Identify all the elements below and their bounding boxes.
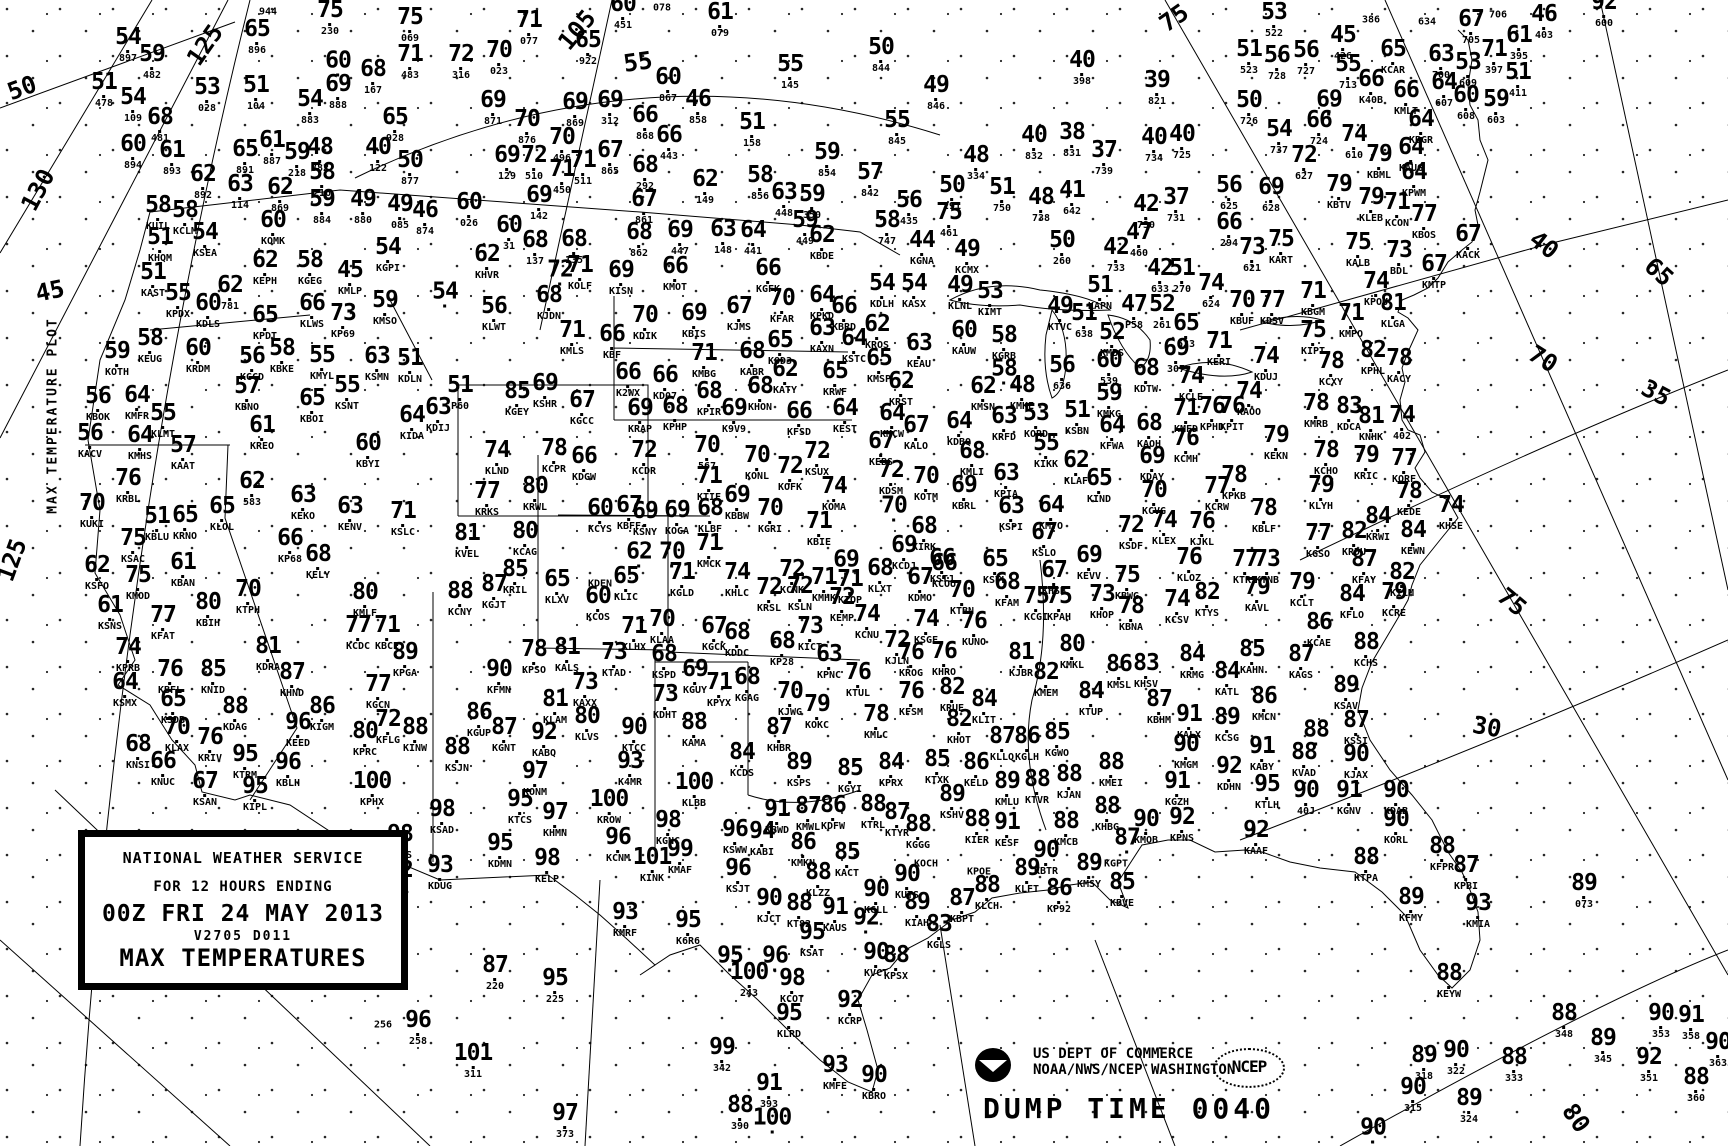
- station-max-temp: 87: [1343, 709, 1369, 732]
- station-max-temp: 69: [526, 184, 552, 207]
- station-id: KFMY: [1398, 914, 1424, 924]
- station-plot: 76KFSM: [898, 680, 924, 718]
- station-id: KBPT: [949, 915, 975, 925]
- station-max-temp: 68: [739, 340, 765, 363]
- station-max-temp: 89: [994, 770, 1020, 793]
- station-max-temp: 88: [905, 813, 931, 836]
- station-max-temp: 53: [1023, 402, 1049, 425]
- station-plot: 68137: [522, 229, 548, 267]
- station-id: KCSV: [1164, 616, 1190, 626]
- station-id: KPIT: [1219, 423, 1245, 433]
- station-id: 363: [1705, 1059, 1728, 1069]
- station-max-temp: 60: [120, 133, 146, 156]
- station-max-temp: 60: [587, 497, 613, 520]
- station-max-temp: 56: [481, 295, 507, 318]
- station-id: KTAD: [601, 669, 627, 679]
- station-max-temp: 92: [1636, 1046, 1662, 1069]
- station-max-temp: 63: [809, 317, 835, 340]
- station-max-temp: 68: [747, 375, 773, 398]
- station-max-temp: 64: [399, 404, 425, 427]
- station-max-temp: 79: [1326, 173, 1352, 196]
- station-max-temp: 81: [1008, 641, 1034, 664]
- station-max-temp: 95: [776, 1002, 802, 1025]
- station-max-temp: 49: [350, 188, 376, 211]
- station-id: KEWN: [1400, 547, 1426, 557]
- station-plot: 66KDGW: [571, 445, 597, 483]
- station-plot: 59KMSO: [372, 289, 398, 327]
- station-max-temp: 75: [397, 6, 423, 29]
- station-id: KIGM: [309, 723, 335, 733]
- station-id: KRDM: [185, 365, 211, 375]
- station-id: KPHX: [353, 798, 392, 808]
- station-plot: 57842: [857, 161, 883, 199]
- station-max-temp: 98: [534, 847, 560, 870]
- station-id: KFAR: [769, 315, 795, 325]
- station-id: 079: [707, 29, 733, 39]
- station-max-temp: 66: [652, 364, 678, 387]
- station-max-temp: 75: [1114, 564, 1140, 587]
- station-max-temp: 60: [1453, 84, 1479, 107]
- station-id: KGWO: [1044, 749, 1070, 759]
- station-id: KEKO: [290, 512, 316, 522]
- station-id: KDGW: [571, 473, 597, 483]
- station-id: 342: [709, 1064, 735, 1074]
- station-plot: 83KHSV: [1133, 652, 1159, 690]
- station-max-temp: 89: [1571, 872, 1597, 895]
- station-plot: 90KFMN: [486, 658, 512, 696]
- station-plot: 62KSFO: [84, 554, 110, 592]
- station-max-temp: 66: [632, 104, 658, 127]
- station-id: KSHV: [939, 811, 965, 821]
- station-plot: 71483: [397, 43, 423, 81]
- station-id: 868: [632, 132, 658, 142]
- station-plot: 47P58: [1121, 293, 1147, 331]
- station-id: 883: [297, 116, 323, 126]
- station-plot: 95KLRD: [776, 1002, 802, 1040]
- station-plot: 67KGCK: [701, 615, 727, 653]
- station-plot: 63KEKO: [290, 484, 316, 522]
- station-id: KHLC: [724, 589, 750, 599]
- station-id: 316: [448, 71, 474, 81]
- station-plot: 90KJAX: [1343, 743, 1369, 781]
- station-plot: 63KENV: [337, 495, 363, 533]
- station-max-temp: 55: [165, 282, 191, 305]
- station-max-temp: 86: [1106, 653, 1132, 676]
- station-id: 865: [597, 167, 623, 177]
- station-max-temp: 55: [777, 53, 803, 76]
- station-max-temp: 64: [841, 327, 867, 350]
- station-max-temp: 68: [1133, 357, 1159, 380]
- station-max-temp: 99: [709, 1036, 735, 1059]
- station-max-temp: 69: [721, 397, 747, 420]
- station-plot: 58KEUG: [137, 327, 163, 365]
- side-axis-label: MAX TEMPERATURE PLOT: [46, 301, 61, 531]
- station-plot: 63KSMN: [364, 345, 390, 383]
- station-id: 402: [1389, 432, 1415, 442]
- station-plot: 634: [1418, 17, 1436, 28]
- station-max-temp: 85: [834, 841, 860, 864]
- station-plot: 100KPHX: [353, 770, 392, 808]
- station-plot: 89KFMY: [1398, 886, 1424, 924]
- station-plot: 76KTUL: [845, 661, 871, 699]
- station-plot: 69KISN: [608, 259, 634, 297]
- station-plot: 55845: [884, 109, 910, 147]
- station-id: 397: [1481, 66, 1507, 76]
- station-max-temp: 71: [516, 9, 542, 32]
- station-plot: 88KVAD: [1291, 741, 1317, 779]
- station-id: KBIS: [681, 330, 707, 340]
- station-max-temp: 91: [822, 896, 848, 919]
- station-plot: 40832: [1021, 124, 1047, 162]
- station-max-temp: 62: [267, 176, 293, 199]
- station-plot: 65KLXV: [544, 568, 570, 606]
- station-id: KMYL: [309, 372, 335, 382]
- station-max-temp: 82: [1360, 339, 1386, 362]
- station-id: 510: [521, 172, 547, 182]
- station-plot: 63KDIJ: [425, 396, 451, 434]
- station-plot: 53522: [1261, 1, 1287, 39]
- station-max-temp: 68: [360, 58, 386, 81]
- station-id: 40J: [1293, 807, 1319, 817]
- station-max-temp: 88: [786, 892, 812, 915]
- station-max-temp: 53: [194, 76, 220, 99]
- station-id: 880: [350, 216, 376, 226]
- station-id: 854: [814, 169, 840, 179]
- station-max-temp: 71: [567, 254, 593, 277]
- station-max-temp: 59: [1096, 382, 1122, 405]
- station-max-temp: 72: [1118, 514, 1144, 537]
- station-max-temp: 78: [541, 437, 567, 460]
- station-max-temp: 77: [150, 604, 176, 627]
- station-plot: 71KMPO: [1338, 302, 1364, 340]
- station-max-temp: 74: [1438, 494, 1464, 517]
- station-id: KFLG: [375, 736, 401, 746]
- station-id: KLGA: [1380, 320, 1406, 330]
- station-plot: 55713: [1335, 53, 1361, 91]
- station-id: 821: [1144, 97, 1170, 107]
- station-id: KMSO: [372, 317, 398, 327]
- station-plot: 49846: [923, 74, 949, 112]
- station-plot: 88KAMA: [681, 711, 707, 749]
- station-id: KINW: [402, 744, 428, 754]
- station-plot: 95KSAT: [799, 921, 825, 959]
- station-id: KCRE: [1381, 609, 1407, 619]
- station-plot: 77KFAT: [150, 604, 176, 642]
- station-plot: 66KLWS: [299, 292, 325, 330]
- station-max-temp: 60: [325, 50, 351, 73]
- station-id: KP69: [330, 330, 356, 340]
- station-max-temp: 84: [1078, 680, 1104, 703]
- station-plot: 87: [1114, 827, 1140, 854]
- station-max-temp: 87: [491, 716, 517, 739]
- station-max-temp: 63: [906, 332, 932, 355]
- station-id: 638: [1071, 330, 1097, 340]
- station-id: KSHR: [532, 400, 558, 410]
- station-id: 627: [1291, 172, 1317, 182]
- station-plot: 71KGLD: [669, 561, 695, 599]
- station-plot: 80KCAG: [512, 520, 538, 558]
- station-plot: 68KDTW: [1133, 357, 1159, 395]
- station-id: KMFR: [124, 412, 150, 422]
- station-max-temp: 81: [542, 688, 568, 711]
- station-id: KISN: [608, 287, 634, 297]
- station-id: KCHS: [1353, 659, 1379, 669]
- station-id: KORD: [1023, 430, 1049, 440]
- station-id: KLXV: [544, 596, 570, 606]
- station-id: KPNS: [1169, 834, 1195, 844]
- station-plot: 54883: [297, 88, 323, 126]
- station-max-temp: 78: [1386, 347, 1412, 370]
- station-plot: 64KSMX: [112, 671, 138, 709]
- station-plot: 100KLBB: [675, 771, 714, 809]
- station-max-temp: 62: [252, 249, 278, 272]
- station-plot: 82KPHL: [1360, 339, 1386, 377]
- station-id: 026: [456, 219, 482, 229]
- station-plot: 91KESF: [994, 811, 1020, 849]
- station-max-temp: 67: [1455, 223, 1481, 246]
- station-max-temp: 75: [1345, 231, 1371, 254]
- station-max-temp: 68: [734, 666, 760, 689]
- station-max-temp: 86: [1046, 877, 1072, 900]
- station-id: KRKS: [474, 508, 500, 518]
- station-max-temp: 90: [1705, 1031, 1728, 1054]
- station-max-temp: 101: [454, 1042, 493, 1065]
- station-max-temp: 58: [991, 324, 1017, 347]
- station-id: KSLN: [787, 603, 813, 613]
- station-plot: 79KCRE: [1381, 581, 1407, 619]
- station-id: 294: [1216, 239, 1242, 249]
- station-max-temp: 80: [1059, 633, 1085, 656]
- station-plot: 60894: [120, 133, 146, 171]
- station-id: 893: [159, 167, 185, 177]
- station-id: KSNY: [632, 528, 658, 538]
- station-id: 390: [727, 1122, 753, 1132]
- station-plot: 92KPNS: [1169, 806, 1195, 844]
- station-plot: 62583: [239, 470, 265, 508]
- station-max-temp: 56: [239, 345, 265, 368]
- station-id: KART: [1268, 256, 1294, 266]
- station-id: KFAT: [150, 632, 176, 642]
- station-max-temp: 51: [1169, 257, 1195, 280]
- station-id: 078: [653, 4, 671, 14]
- station-id: KBLU: [144, 533, 170, 543]
- station-max-temp: 84: [1179, 643, 1205, 666]
- station-max-temp: 92: [1216, 755, 1242, 778]
- station-max-temp: 60: [496, 214, 522, 237]
- station-id: KRMG: [1179, 671, 1205, 681]
- station-plot: 70KBUF: [1229, 289, 1255, 327]
- station-max-temp: 69: [724, 484, 750, 507]
- station-id: KBML: [1366, 171, 1392, 181]
- station-id: KSFO: [84, 582, 110, 592]
- station-id: KSAT: [799, 949, 825, 959]
- station-max-temp: 86: [1306, 611, 1332, 634]
- station-id: KGLD: [669, 589, 695, 599]
- station-max-temp: 71: [806, 510, 832, 533]
- station-id: KCLT: [1289, 599, 1315, 609]
- station-plot: 88390: [727, 1094, 753, 1132]
- station-max-temp: 95: [542, 967, 568, 990]
- station-max-temp: 72: [884, 629, 910, 652]
- station-plot: 90315: [1400, 1076, 1426, 1114]
- station-plot: 51270: [1169, 257, 1195, 295]
- station-plot: 71KBIE: [806, 510, 832, 548]
- station-plot: 70KONL: [744, 444, 770, 482]
- station-max-temp: 68: [724, 621, 750, 644]
- station-max-temp: 91: [1164, 770, 1190, 793]
- station-max-temp: 92: [1169, 806, 1195, 829]
- station-plot: 56728: [1264, 44, 1290, 82]
- station-plot: 97373: [552, 1102, 578, 1140]
- station-plot: 6031: [496, 214, 522, 252]
- station-max-temp: 56: [77, 422, 103, 445]
- station-max-temp: 69: [597, 89, 623, 112]
- station-max-temp: 88: [1094, 795, 1120, 818]
- station-id: KLFT: [1014, 885, 1040, 895]
- station-plot: 46858: [685, 88, 711, 126]
- station-plot: 86KGLH: [1014, 725, 1040, 763]
- station-id: KIND: [1086, 495, 1112, 505]
- station-plot: 78KBLF: [1251, 497, 1277, 535]
- station-plot: 52261: [1149, 293, 1175, 331]
- station-id: KAST: [140, 289, 166, 299]
- station-plot: 9040J: [1293, 779, 1319, 817]
- station-max-temp: 66: [755, 257, 781, 280]
- station-plot: 90353: [1648, 1002, 1674, 1040]
- station-max-temp: 88: [883, 944, 909, 967]
- station-plot: 96KBLH: [275, 751, 301, 789]
- station-plot: 68KELY: [305, 543, 331, 581]
- station-max-temp: 88: [1291, 741, 1317, 764]
- station-plot: 62KHVR: [474, 243, 500, 281]
- station-plot: 59218: [284, 141, 310, 179]
- station-max-temp: 40: [1069, 49, 1095, 72]
- station-plot: 42733: [1103, 236, 1129, 274]
- station-max-temp: 67: [1031, 521, 1057, 544]
- station-id: 624: [1198, 300, 1224, 310]
- station-max-temp: 86: [820, 794, 846, 817]
- station-plot: 83KGLS: [926, 913, 952, 951]
- station-max-temp: 93: [617, 750, 643, 773]
- station-plot: 89KSHV: [939, 783, 965, 821]
- station-max-temp: 58: [874, 209, 900, 232]
- station-max-temp: 64: [127, 424, 153, 447]
- station-max-temp: 64: [740, 219, 766, 242]
- station-max-temp: 51: [243, 74, 269, 97]
- station-plot: 51158: [739, 111, 765, 149]
- station-plot: 89KSPS: [786, 751, 812, 789]
- station-id: KGPT: [1104, 860, 1128, 870]
- station-max-temp: 76: [898, 680, 924, 703]
- station-plot: 76KLOZ: [1176, 546, 1202, 584]
- station-plot: 71077: [516, 9, 542, 47]
- station-max-temp: 66: [786, 400, 812, 423]
- station-max-temp: 76: [197, 726, 223, 749]
- station-plot: 53028: [194, 76, 220, 114]
- station-max-temp: 40: [1169, 123, 1195, 146]
- station-max-temp: 69: [632, 500, 658, 523]
- station-id: KELY: [305, 571, 331, 581]
- station-max-temp: 65: [160, 688, 186, 711]
- station-max-temp: 67: [597, 139, 623, 162]
- station-max-temp: 67: [569, 389, 595, 412]
- station-max-temp: 82: [1033, 661, 1059, 684]
- station-max-temp: 77: [1391, 447, 1417, 470]
- station-max-temp: 78: [1251, 497, 1277, 520]
- station-plot: 67KJMS: [726, 295, 752, 333]
- station-max-temp: 56: [85, 385, 111, 408]
- station-plot: 68KPHP: [662, 395, 688, 433]
- station-max-temp: 60: [1096, 349, 1122, 372]
- station-id: KATY: [772, 386, 798, 396]
- station-plot: 71KMCK: [696, 532, 722, 570]
- station-id: KTPA: [1353, 874, 1379, 884]
- station-id: 832: [1021, 152, 1047, 162]
- station-max-temp: 58: [309, 161, 335, 184]
- station-max-temp: 63: [337, 495, 363, 518]
- station-plot: 67KACK: [1455, 223, 1481, 261]
- station-max-temp: 87: [1146, 688, 1172, 711]
- station-id: KCNY: [447, 608, 473, 618]
- station-plot: 69KBRL: [951, 474, 977, 512]
- station-max-temp: 59: [139, 43, 165, 66]
- station-plot: 88KTVR: [1024, 768, 1050, 806]
- station-max-temp: 66: [571, 445, 597, 468]
- station-max-temp: 54: [120, 86, 146, 109]
- station-id: 315: [1400, 1104, 1426, 1114]
- station-max-temp: 58: [747, 164, 773, 187]
- station-max-temp: 97: [522, 760, 548, 783]
- station-id: KDUG: [427, 882, 453, 892]
- station-plot: 90KBRO: [861, 1064, 887, 1102]
- station-id: 831: [1059, 149, 1085, 159]
- station-max-temp: 88: [444, 736, 470, 759]
- station-plot: 66KBF: [599, 323, 625, 361]
- station-id: KMLU: [994, 798, 1020, 808]
- station-plot: 65KRNO: [172, 504, 198, 542]
- station-plot: 386: [1362, 15, 1380, 26]
- station-id: 403: [1531, 31, 1557, 41]
- station-id: KSMN: [364, 373, 390, 383]
- station-id: 583: [239, 498, 265, 508]
- station-plot: 88KEYW: [1436, 962, 1462, 1000]
- station-max-temp: 63: [771, 181, 797, 204]
- station-max-temp: 72: [521, 144, 547, 167]
- station-max-temp: 60: [355, 432, 381, 455]
- station-max-temp: 64: [879, 402, 905, 425]
- station-id: KAUW: [951, 347, 977, 357]
- station-id: KSNS: [97, 622, 123, 632]
- station-id: KHON: [747, 403, 773, 413]
- station-id: KSEA: [192, 249, 218, 259]
- station-max-temp: 79: [1353, 444, 1379, 467]
- credits-office: NOAA/NWS/NCEP WASHINGTON: [1033, 1062, 1235, 1078]
- station-plot: 62KLAF: [1063, 449, 1089, 487]
- station-id: KMSP: [866, 375, 892, 385]
- station-id: 894: [120, 161, 146, 171]
- station-id: 129: [494, 172, 520, 182]
- station-max-temp: 90: [894, 863, 920, 886]
- station-plot: 40398: [1069, 49, 1095, 87]
- station-id: KTUP: [1078, 708, 1104, 718]
- station-max-temp: 90: [861, 1064, 887, 1087]
- station-max-temp: 49: [947, 274, 973, 297]
- station-id: KACY: [1386, 375, 1412, 385]
- station-max-temp: 68: [959, 440, 985, 463]
- station-id: 351: [1636, 1074, 1662, 1084]
- station-max-temp: 78: [1318, 350, 1344, 373]
- station-id: KBAN: [170, 579, 196, 589]
